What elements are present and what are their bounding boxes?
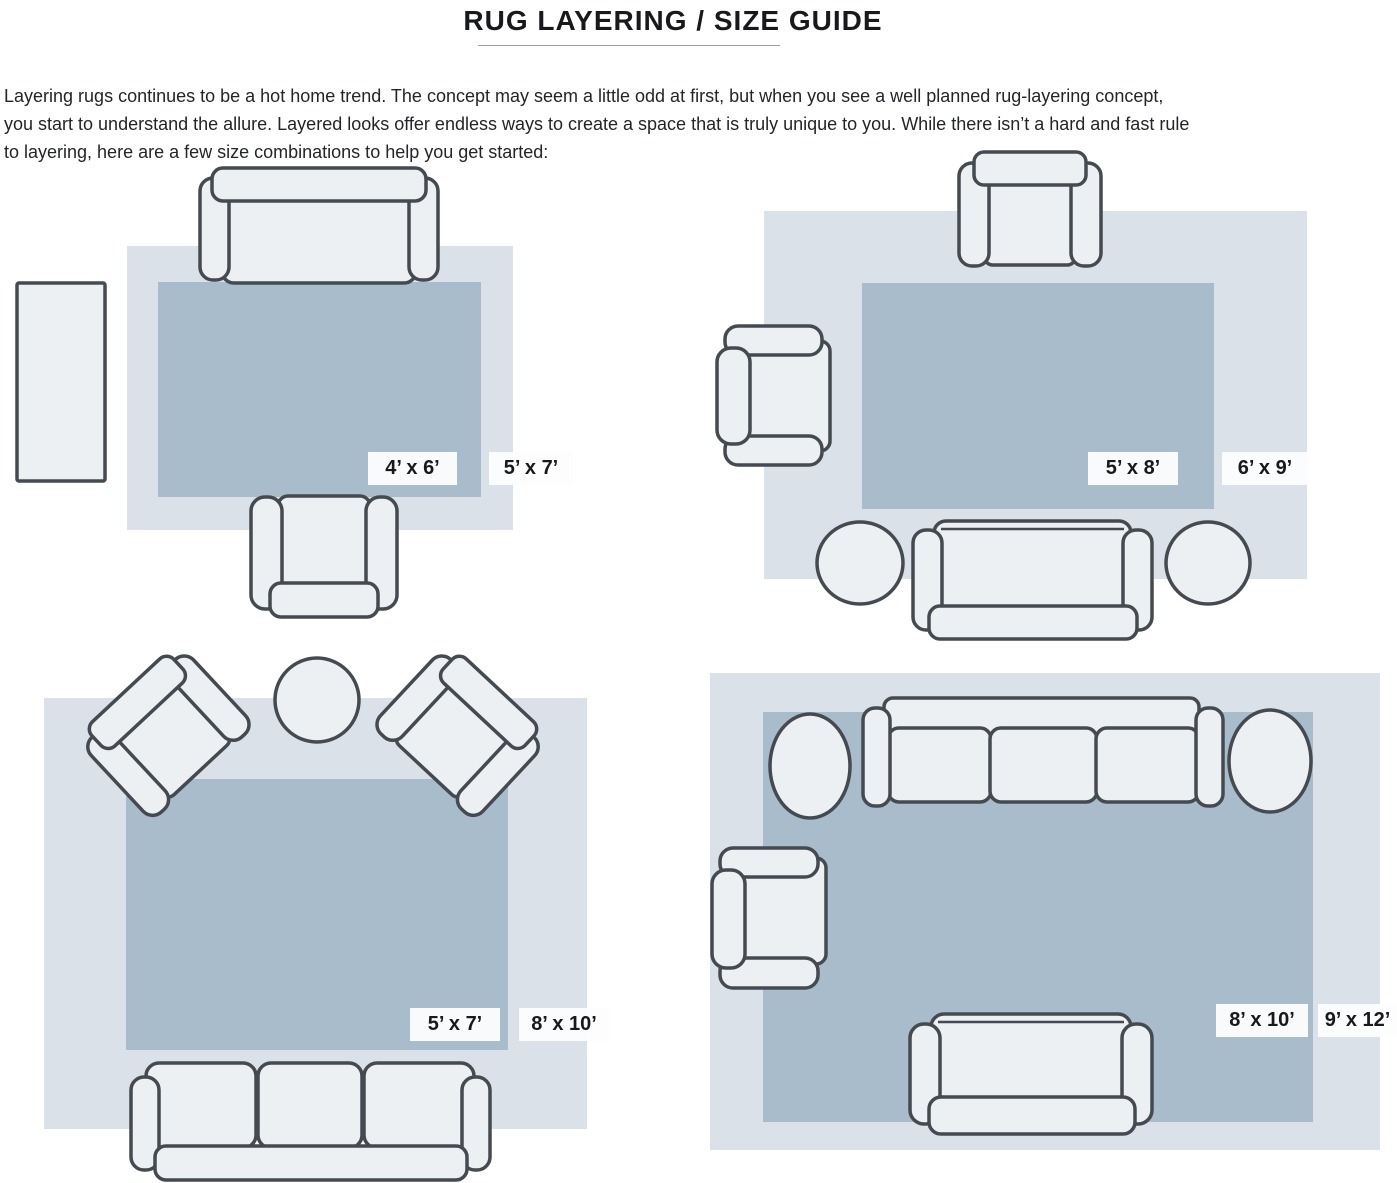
q2-small-rug-size-label: 5’ x 8’ xyxy=(1088,452,1178,485)
q2-sofa-bottom xyxy=(913,521,1152,639)
rug-layout-diagrams xyxy=(0,0,1397,1183)
q1-small-rug-size-label: 4’ x 6’ xyxy=(368,452,457,485)
q3-round-table xyxy=(275,658,359,742)
q3-small-rug-size-label: 5’ x 7’ xyxy=(410,1008,500,1041)
q4-loveseat-bottom xyxy=(910,1014,1152,1134)
q1-sofa xyxy=(200,168,438,283)
q2-armchair-top xyxy=(959,152,1101,266)
q2-round-table-left xyxy=(817,522,903,604)
q4-round-table-right xyxy=(1229,710,1311,812)
rug-size-guide-page: RUG LAYERING / SIZE GUIDE Layering rugs … xyxy=(0,0,1397,1183)
q4-sofa-top xyxy=(863,698,1223,806)
q2-large-rug-size-label: 6’ x 9’ xyxy=(1222,452,1308,485)
q2-armchair-left xyxy=(717,326,830,465)
q3-sofa-bottom xyxy=(131,1063,490,1180)
q1-large-rug-size-label: 5’ x 7’ xyxy=(489,452,573,485)
q4-large-rug-size-label: 9’ x 12’ xyxy=(1318,1004,1397,1037)
q3-large-rug-size-label: 8’ x 10’ xyxy=(519,1008,609,1041)
q4-small-rug-size-label: 8’ x 10’ xyxy=(1216,1004,1308,1037)
q2-round-table-right xyxy=(1166,522,1250,604)
q4-round-table-left xyxy=(770,714,850,818)
q1-console-table xyxy=(17,283,105,481)
q4-armchair-left xyxy=(712,848,826,988)
q1-armchair xyxy=(251,496,397,617)
